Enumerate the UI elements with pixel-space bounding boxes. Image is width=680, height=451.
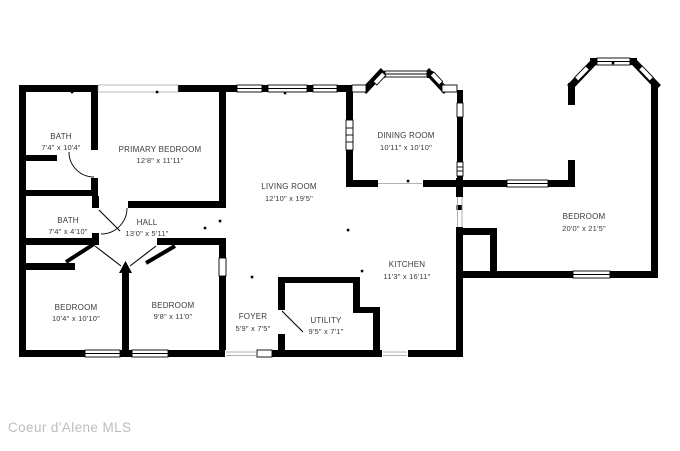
room-label-bath-upper-name: BATH xyxy=(50,132,72,141)
floor-plan-canvas: BATH 7'4" x 10'4" PRIMARY BEDROOM 12'8" … xyxy=(0,0,680,451)
watermark-text: Coeur d'Alene MLS xyxy=(8,420,131,435)
floor-plan: BATH 7'4" x 10'4" PRIMARY BEDROOM 12'8" … xyxy=(0,0,680,451)
room-label-bedroom-left-name: BEDROOM xyxy=(55,303,98,312)
room-label-primary-bedroom-dims: 12'8" x 11'11" xyxy=(137,156,184,165)
room-label-kitchen-name: KITCHEN xyxy=(389,260,426,269)
room-label-bedroom-middle-dims: 9'8" x 11'0" xyxy=(154,312,193,321)
room-label-bath-lower-dims: 7'4" x 4'10" xyxy=(48,227,87,236)
room-label-bedroom-left-dims: 10'4" x 10'10" xyxy=(52,314,100,323)
room-label-foyer-name: FOYER xyxy=(239,312,268,321)
bath-door-arc xyxy=(69,152,94,177)
room-label-bedroom-right-dims: 20'0" x 21'5" xyxy=(562,224,606,233)
room-label-living-room-dims: 12'10" x 19'5" xyxy=(265,194,313,203)
room-label-hall-name: HALL xyxy=(137,218,158,227)
primary-door-arc xyxy=(101,208,127,234)
room-label-primary-bedroom-name: PRIMARY BEDROOM xyxy=(119,145,202,154)
room-label-utility-name: UTILITY xyxy=(310,316,342,325)
room-label-dining-room-name: DINING ROOM xyxy=(377,131,434,140)
room-label-foyer-dims: 5'9" x 7'5" xyxy=(236,324,271,333)
room-label-living-room-name: LIVING ROOM xyxy=(261,182,317,191)
room-label-bath-lower-name: BATH xyxy=(57,216,79,225)
room-label-dining-room-dims: 10'11" x 10'10" xyxy=(380,143,432,152)
room-label-utility-dims: 9'5" x 7'1" xyxy=(309,327,344,336)
room-label-bedroom-middle-name: BEDROOM xyxy=(152,301,195,310)
room-label-bath-upper-dims: 7'4" x 10'4" xyxy=(41,143,80,152)
room-label-bedroom-right-name: BEDROOM xyxy=(563,212,606,221)
room-label-kitchen-dims: 11'3" x 16'11" xyxy=(384,272,431,281)
room-label-hall-dims: 13'0" x 5'11" xyxy=(125,229,168,238)
